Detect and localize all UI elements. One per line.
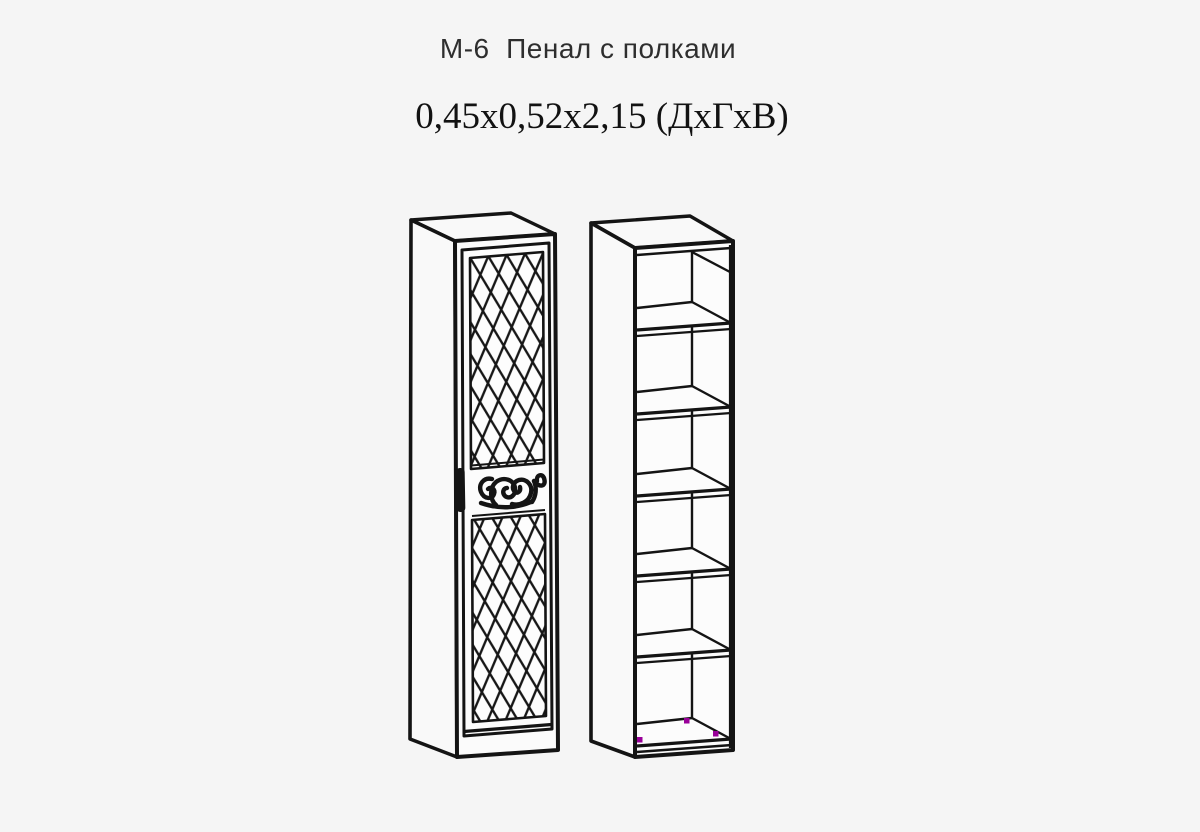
closed-cabinet-drawing xyxy=(410,213,558,757)
door-lattice-upper xyxy=(470,252,544,469)
door-handle xyxy=(456,468,466,512)
cabinet-side-panel xyxy=(410,220,457,757)
shelf-unit-drawing xyxy=(591,216,733,757)
furniture-diagram xyxy=(0,0,1200,832)
door-lattice-lower xyxy=(472,514,546,722)
furniture-sheet: { "header": { "model_title": "М-6 Пенал … xyxy=(0,0,1200,832)
carcass-side-panel xyxy=(591,223,635,757)
